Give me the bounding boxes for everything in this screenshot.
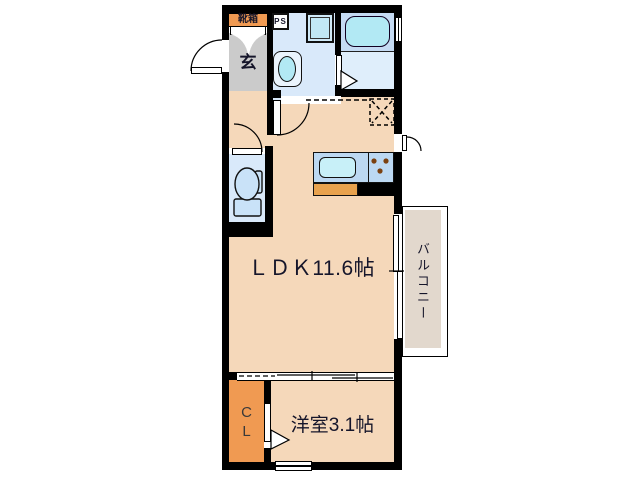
wall-bottom [222,462,402,470]
wall-partition-stub [229,372,237,380]
closet-door-leaf [264,403,271,442]
wall-closet-right-lower [264,448,271,462]
wall-hall-stub [267,90,281,98]
shoe-box-label: 靴箱 [228,13,268,27]
balcony-label: バルコニー [412,216,432,348]
washroom-opening-band [281,96,341,104]
pipe-space-label: PS [272,13,289,30]
counter-divider [368,152,369,183]
bathtub [345,16,390,47]
wall-left-main [222,72,229,462]
kitchen-base-dark [358,183,394,196]
kitchen-door-swing [407,137,421,151]
room-ldk [273,97,394,373]
entrance-label: 玄 [236,52,260,74]
kitchen-door-gap [394,134,402,152]
ldk-door-leaf [273,100,281,135]
floor-plan: 靴箱 PS 玄 ＬＤＫ11.6帖 洋室3.1帖 バルコニー CL [0,0,638,480]
bathroom-window-line [398,18,399,41]
wall-top [222,5,402,13]
washbasin-bowl [278,56,296,82]
bathroom-door-leaf [336,55,342,86]
toilet-door-leaf [232,148,262,155]
wall-closet-right-upper [264,379,271,403]
kitchen-base-cabinet [313,183,358,196]
wall-toilet-bottom [222,222,273,237]
balcony-window-sash-lower [397,271,403,339]
kitchen-door-leaf [402,135,407,151]
ldk-label: ＬＤＫ11.6帖 [229,256,394,282]
bedroom-label: 洋室3.1帖 [271,414,394,438]
wall-washroom-bath-upper [335,13,341,55]
closet-label: CL [236,398,256,448]
bedroom-window-inner [275,466,312,471]
shoe-cabinet [230,26,266,35]
room-toilet [229,154,265,222]
wall-bath-bottom [341,89,402,97]
washing-machine-pan-inner [310,17,330,39]
entrance-door-leaf [191,67,222,74]
kitchen-sink [319,157,356,178]
partition-sliding-door [237,372,394,381]
